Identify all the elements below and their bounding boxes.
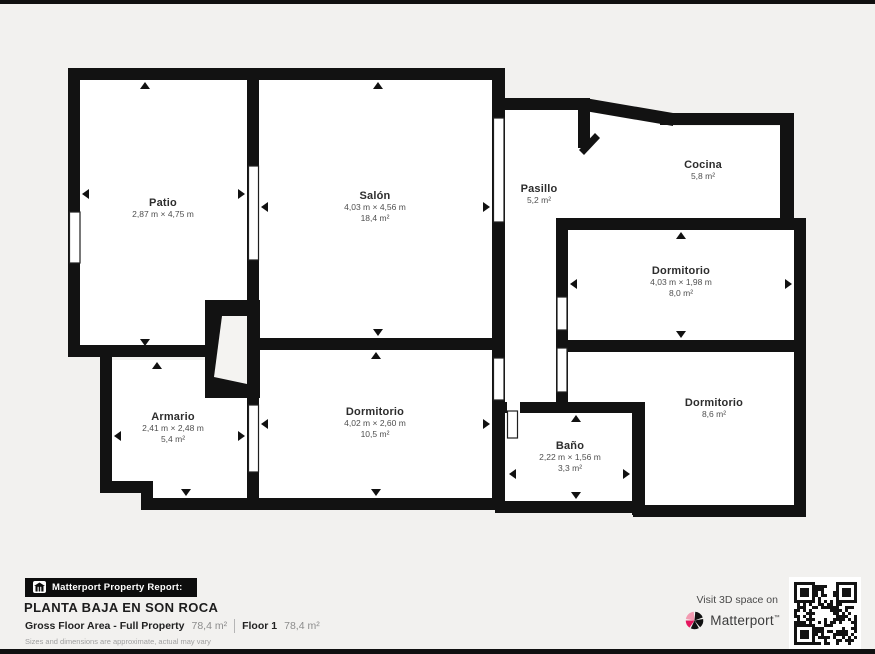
patio-salon-window [249, 166, 259, 260]
gross-floor-area-value: 78,4 m² [191, 620, 227, 632]
gross-floor-area-label: Gross Floor Area - Full Property [25, 620, 184, 632]
floor-area-summary: Gross Floor Area - Full Property 78,4 m²… [25, 619, 320, 633]
salon-pasillo-window [494, 118, 505, 222]
matterport-brand-text: Matterport™ [710, 613, 780, 628]
room-floors [80, 80, 794, 505]
matterport-floor-plan-report: Patio 2,87 m × 4,75 m Salón 4,03 m × 4,5… [0, 0, 875, 654]
armario-door [249, 405, 259, 472]
cocina-door-opening [577, 148, 591, 218]
bano-floor [505, 413, 632, 501]
floor-plan-drawing [0, 0, 875, 654]
matterport-logo-icon [684, 610, 705, 631]
floor-1-value: 78,4 m² [284, 620, 320, 632]
disclaimer-text: Sizes and dimensions are approximate, ac… [25, 637, 211, 646]
divider [234, 619, 235, 633]
dormitorio-3-floor [259, 350, 492, 498]
cocina-floor [590, 112, 780, 218]
dormitorio-1-door [557, 297, 567, 330]
bano-door-leaf [508, 411, 518, 438]
matterport-brand: Matterport™ [630, 610, 780, 631]
dormitorio-2-door [557, 348, 567, 392]
bottom-border-bar [0, 649, 875, 654]
plan-title: PLANTA BAJA EN SON ROCA [24, 600, 218, 615]
qr-code [789, 577, 861, 649]
report-badge-label: Matterport Property Report: [52, 582, 183, 593]
patio-window [70, 212, 81, 263]
house-icon [33, 581, 46, 593]
dormitorio-1-floor [568, 230, 794, 340]
salon-floor [259, 80, 492, 338]
visit-3d-text: Visit 3D space on [630, 594, 778, 606]
floor-1-label: Floor 1 [242, 620, 277, 632]
report-badge: Matterport Property Report: [25, 578, 197, 597]
dormitorio-3-door [494, 358, 505, 400]
